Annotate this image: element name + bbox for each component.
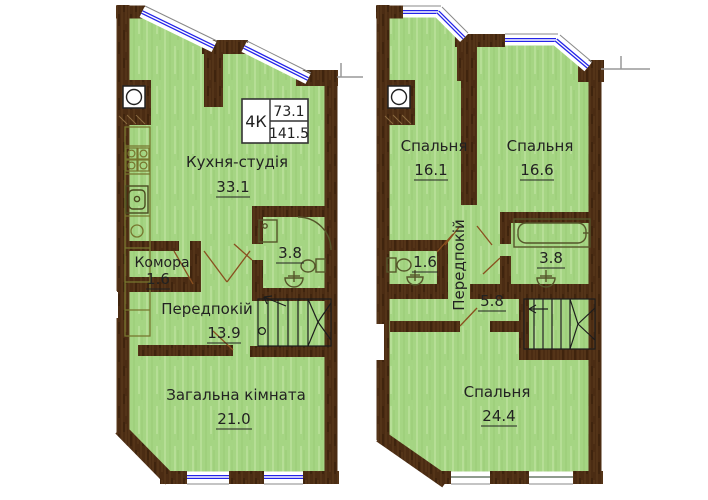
kitchen-name: Кухня-студія xyxy=(186,153,288,171)
window xyxy=(451,477,490,484)
level2-neighbor-wall-lines xyxy=(601,56,650,69)
floorplan-page: 4К 73.1 141.5 Кухня-студія 33.1 Комора 1… xyxy=(0,0,708,500)
unit-label-box: 4К 73.1 141.5 xyxy=(242,99,309,143)
bedroom-left-name: Спальня xyxy=(401,137,468,155)
bedroom-large-area: 24.4 xyxy=(482,407,515,425)
bedroom-right-name: Спальня xyxy=(507,137,574,155)
level1-plan: 4К 73.1 141.5 Кухня-студія 33.1 Комора 1… xyxy=(106,5,363,484)
level1-neighbor-wall-lines xyxy=(337,63,363,77)
ventilation-shaft-icon xyxy=(117,80,151,125)
unit-type-label: 4К xyxy=(245,112,267,131)
hallway-area: 5.8 xyxy=(480,292,504,310)
hallway-area: 13.9 xyxy=(207,324,240,342)
living-room-area: 21.0 xyxy=(217,410,250,428)
level2-plan: Спальня 16.1 Спальня 16.6 1.6 3.8 Передп… xyxy=(372,5,650,484)
unit-area-living: 73.1 xyxy=(273,104,304,120)
bedroom-left-area: 16.1 xyxy=(414,161,447,179)
level2-wall-notch xyxy=(372,324,384,360)
window xyxy=(187,477,229,484)
pantry-name: Комора xyxy=(134,255,189,271)
stove-icon xyxy=(126,148,149,171)
hallway-name: Передпокій xyxy=(450,219,468,311)
unit-area-total: 141.5 xyxy=(269,126,309,142)
window xyxy=(264,477,303,484)
window xyxy=(505,34,558,40)
pantry-area: 1.6 xyxy=(146,270,170,288)
kitchen-area: 33.1 xyxy=(216,178,249,196)
bedroom-right-area: 16.6 xyxy=(520,161,553,179)
bathroom-area: 3.8 xyxy=(278,244,302,262)
ventilation-shaft-icon xyxy=(383,80,415,125)
bathroom-area: 3.8 xyxy=(539,249,563,267)
living-room-name: Загальна кімната xyxy=(166,386,306,404)
bedroom-large-name: Спальня xyxy=(464,383,531,401)
floor-plan-canvas: 4К 73.1 141.5 Кухня-студія 33.1 Комора 1… xyxy=(0,0,708,500)
hallway-name: Передпокій xyxy=(161,300,253,318)
level1-wall-notch xyxy=(106,291,118,318)
window xyxy=(403,6,441,12)
window xyxy=(529,477,573,484)
wc-area: 1.6 xyxy=(413,253,437,271)
